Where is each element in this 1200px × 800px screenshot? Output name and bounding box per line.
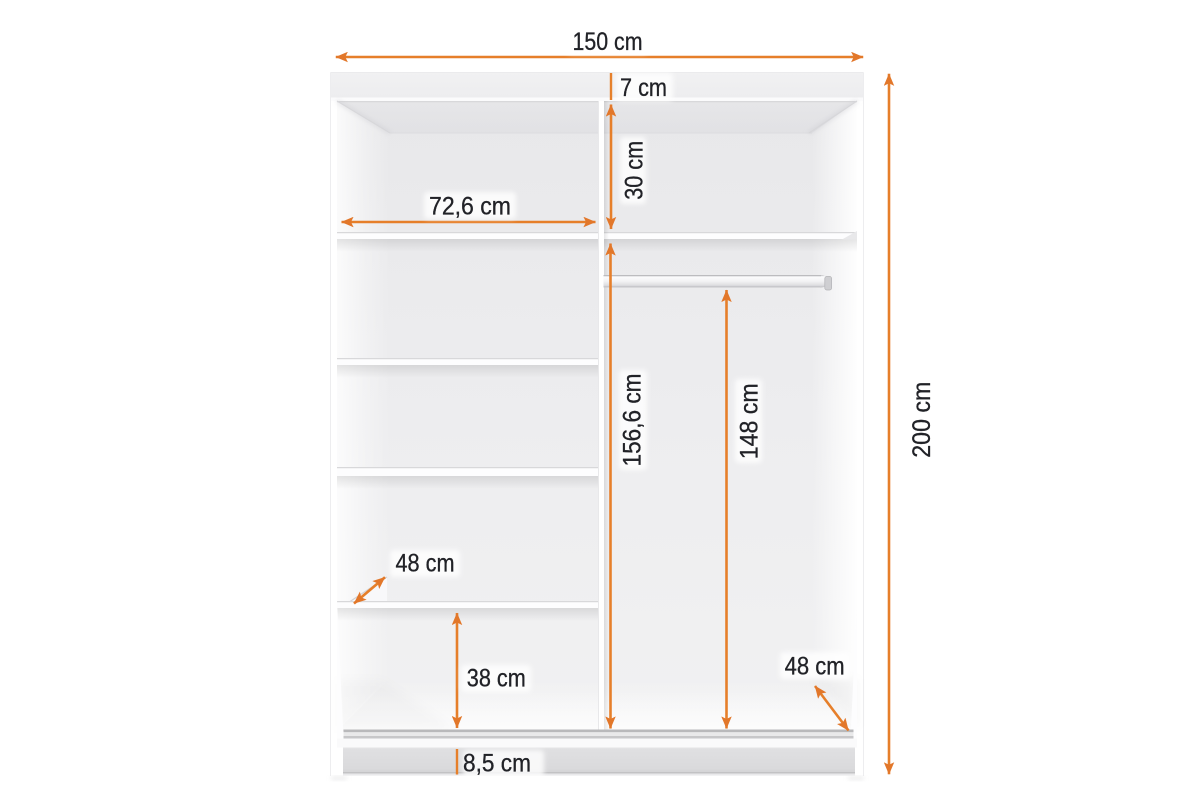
svg-text:148 cm: 148 cm — [736, 383, 764, 459]
svg-text:200 cm: 200 cm — [908, 382, 936, 458]
svg-text:156,6 cm: 156,6 cm — [619, 374, 647, 467]
svg-text:8,5 cm: 8,5 cm — [463, 750, 531, 778]
svg-text:48 cm: 48 cm — [396, 550, 455, 578]
svg-text:7 cm: 7 cm — [620, 74, 667, 102]
svg-text:72,6 cm: 72,6 cm — [429, 193, 511, 221]
svg-text:30 cm: 30 cm — [621, 141, 649, 200]
svg-text:48 cm: 48 cm — [785, 652, 845, 680]
svg-text:38 cm: 38 cm — [467, 665, 526, 693]
svg-text:150 cm: 150 cm — [573, 28, 643, 56]
